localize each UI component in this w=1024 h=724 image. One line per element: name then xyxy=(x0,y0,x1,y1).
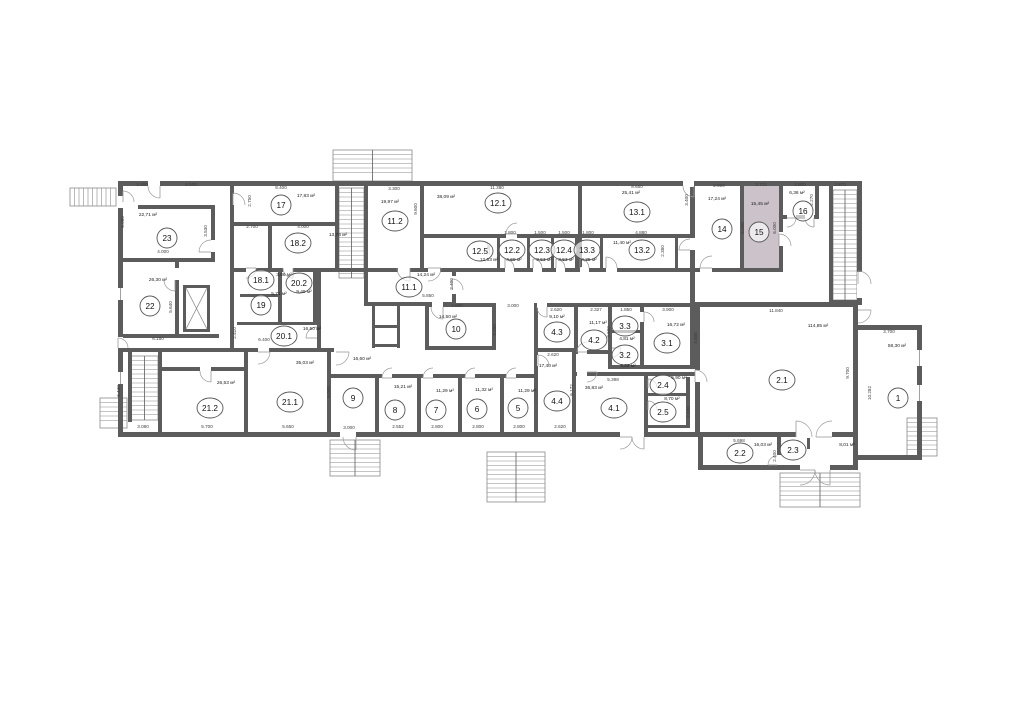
dimension-label: 1.800 xyxy=(504,230,516,235)
room-area: 13,74 м² xyxy=(329,232,348,238)
room-area: 58,30 м² xyxy=(888,343,907,349)
dimension-label: 4.500 xyxy=(451,303,463,308)
dimension-label: 8.500 xyxy=(185,182,197,187)
dimension-label: 6.150 xyxy=(152,336,164,341)
dimension-label: 5.700 xyxy=(201,424,213,429)
dimension-label: 1.800 xyxy=(582,230,594,235)
room-area: 9,49 м² xyxy=(296,289,312,295)
room-area: 6,36 м² xyxy=(789,190,805,196)
dimension-label: 2.070 xyxy=(686,406,691,418)
room-number: 12.4 xyxy=(556,246,572,255)
room-number: 12.3 xyxy=(534,246,550,255)
dimension-label: 4.880 xyxy=(635,230,647,235)
room-number: 2.1 xyxy=(776,376,788,385)
dimension-label: 1.500 xyxy=(534,230,546,235)
floor-plan: 1.5008.5008.4003.30011.3808.6502.9002.72… xyxy=(0,0,1024,724)
room-area: 25,41 м² xyxy=(622,190,641,196)
room-number: 2.4 xyxy=(657,381,669,390)
room-area: 35,03 м² xyxy=(296,360,315,366)
room-area: 11,40 м² xyxy=(613,240,631,246)
room-number: 8 xyxy=(393,406,398,415)
dimension-label: 3.080 xyxy=(137,424,149,429)
dimension-label: 2.750 xyxy=(247,195,252,207)
room-area: 14,50 м² xyxy=(439,314,458,320)
room-area: 36,83 м² xyxy=(585,385,604,391)
room-number: 12.1 xyxy=(490,199,506,208)
dimension-label: 5.698 xyxy=(733,438,745,443)
room-number: 21.1 xyxy=(282,398,298,407)
room-area: 11,17 м² xyxy=(589,320,607,326)
room-number: 2.2 xyxy=(734,449,746,458)
dimension-label: 1.500 xyxy=(558,230,570,235)
room-number: 22 xyxy=(145,302,155,311)
dimension-label: 2.620 xyxy=(554,424,566,429)
room-number: 13.3 xyxy=(579,246,595,255)
dimension-label: 5.640 xyxy=(168,301,173,313)
dimension-label: 2.900 xyxy=(713,183,725,188)
floor-plan-svg: 1.5008.5008.4003.30011.3808.6502.9002.72… xyxy=(0,0,1024,724)
room-area: 14,24 м² xyxy=(417,272,436,278)
room-area: 15,45 м² xyxy=(751,201,770,207)
dimension-label: 3.600 xyxy=(606,326,611,338)
dimension-label: 2.410 xyxy=(232,327,237,339)
dimension-label: 9.700 xyxy=(845,367,850,379)
room-number: 3.2 xyxy=(619,351,631,360)
room-area: 9,10 м² xyxy=(549,314,565,320)
room-area: 3,53 м² xyxy=(536,257,552,263)
dimension-label: 6.172 xyxy=(569,384,574,396)
room-number: 3.1 xyxy=(661,339,673,348)
dimension-label: 4.800 xyxy=(693,332,698,344)
dimension-label: 2.620 xyxy=(547,352,559,357)
room-area: 19,97 м² xyxy=(381,199,400,205)
room-area: 16,72 м² xyxy=(667,322,686,328)
room-number: 2.5 xyxy=(657,408,669,417)
dimension-label: 2.722 xyxy=(755,182,767,187)
room-number: 18.2 xyxy=(290,239,306,248)
room-area: 5,71 м² xyxy=(271,291,287,297)
room-number: 4.1 xyxy=(608,404,620,413)
room-area: 38,09 м² xyxy=(437,194,456,200)
room-area: 17,24 м² xyxy=(708,196,727,202)
dimension-label: 2.700 xyxy=(246,224,258,229)
room-area: 26,30 м² xyxy=(149,277,168,283)
room-number: 15 xyxy=(754,228,764,237)
room-number: 3.3 xyxy=(619,322,631,331)
room-area: 5,90 м² xyxy=(671,375,687,381)
dimension-label: 2.400 xyxy=(449,278,454,290)
dimension-label: 2.400 xyxy=(772,450,777,462)
room-number: 13.2 xyxy=(634,246,650,255)
room-number: 2.3 xyxy=(787,446,799,455)
dimension-label: 8.400 xyxy=(275,185,287,190)
room-number: 16 xyxy=(798,207,808,216)
room-area: 12,53 м² xyxy=(480,257,499,263)
dimension-label: 3.200 xyxy=(492,324,497,336)
dimension-label: 4.000 xyxy=(157,249,169,254)
room-number: 10 xyxy=(451,325,461,334)
dimension-label: 3.000 xyxy=(507,303,519,308)
room-number: 11.1 xyxy=(401,283,417,292)
dimension-label: 3.530 xyxy=(203,225,208,237)
room-area: 3,02 м² xyxy=(620,363,636,369)
dimension-label: 3.700 xyxy=(883,329,895,334)
room-number: 4.3 xyxy=(551,328,563,337)
dimension-label: 2.327 xyxy=(590,307,602,312)
room-area: 26,53 м² xyxy=(217,380,236,386)
room-area: 8,70 м² xyxy=(664,396,680,402)
room-number: 7 xyxy=(434,406,439,415)
dimension-label: 6.000 xyxy=(740,222,745,234)
room-area: 8,01 м² xyxy=(839,442,855,448)
room-number: 11.2 xyxy=(387,217,403,226)
dimension-label: 2.800 xyxy=(513,424,525,429)
room-number: 13.1 xyxy=(629,208,645,217)
dimension-label: 11.840 xyxy=(769,308,783,313)
room-number: 23 xyxy=(162,234,172,243)
room-area: 4,69 м² xyxy=(506,257,522,263)
room-area: 17,40 м² xyxy=(539,363,558,369)
room-number: 4.4 xyxy=(551,397,563,406)
plan-background xyxy=(0,0,1024,724)
room-number: 21.2 xyxy=(202,404,218,413)
dimension-label: 5.398 xyxy=(607,377,619,382)
dimension-label: 6.440 xyxy=(116,385,121,397)
dimension-label: 6.080 xyxy=(120,216,125,228)
dimension-label: 3.000 xyxy=(343,425,355,430)
room-number: 12.2 xyxy=(504,246,520,255)
dimension-label: 5.850 xyxy=(422,293,434,298)
room-area: 4,35 м² xyxy=(581,257,597,263)
dimension-label: 2.800 xyxy=(472,424,484,429)
dimension-label: 5.650 xyxy=(282,424,294,429)
room-number: 17 xyxy=(276,201,286,210)
room-number: 19 xyxy=(256,301,266,310)
dimension-label: 2.800 xyxy=(431,424,443,429)
room-number: 5 xyxy=(516,404,521,413)
room-area: 3,53 м² xyxy=(558,257,574,263)
dimension-label: 1.850 xyxy=(620,307,632,312)
dimension-label: 11.380 xyxy=(490,185,504,190)
room-number: 14 xyxy=(717,225,727,234)
dimension-label: 9.600 xyxy=(413,203,418,215)
dimension-label: 3.900 xyxy=(662,307,674,312)
room-area: 15,21 м² xyxy=(394,384,413,390)
dimension-label: 6.400 xyxy=(258,337,270,342)
room-number: 4.2 xyxy=(588,336,600,345)
room-area: 114,85 м² xyxy=(808,323,829,329)
room-number: 20.2 xyxy=(291,279,307,288)
room-area: 16,03 м² xyxy=(754,442,773,448)
room-area: 17,83 м² xyxy=(297,193,316,199)
dimension-label: 2.870 xyxy=(834,182,846,187)
room-number: 20.1 xyxy=(276,332,292,341)
dimension-label: 3.300 xyxy=(388,186,400,191)
dimension-label: 3.400 xyxy=(684,194,689,206)
room-area: 16,60 м² xyxy=(353,356,372,362)
dimension-label: 2.552 xyxy=(392,424,404,429)
dimension-label: 10.282 xyxy=(867,386,872,400)
room-area: 11,29 м² xyxy=(436,388,454,394)
room-number: 12.5 xyxy=(472,247,488,256)
room-number: 18.1 xyxy=(253,276,269,285)
dimension-label: 6.000 xyxy=(326,386,331,398)
dimension-label: 4.000 xyxy=(297,224,309,229)
room-number: 6 xyxy=(475,405,480,414)
dimension-label: 2.620 xyxy=(550,307,562,312)
room-area: 11,29 м² xyxy=(518,388,536,394)
room-area: 11,32 м² xyxy=(475,387,493,393)
dimension-label: 2.380 xyxy=(660,245,665,257)
room-area: 16,50 м² xyxy=(303,326,322,332)
dimension-label: 8.650 xyxy=(631,184,643,189)
dimension-label: 2.800 xyxy=(794,182,806,187)
dimension-label: 6.000 xyxy=(772,222,777,234)
room-number: 9 xyxy=(351,394,356,403)
room-area: 22,71 м² xyxy=(139,212,158,218)
room-number: 1 xyxy=(896,394,901,403)
room-area: 4,81 м² xyxy=(619,336,635,342)
dimension-label: 1.500 xyxy=(136,182,148,187)
